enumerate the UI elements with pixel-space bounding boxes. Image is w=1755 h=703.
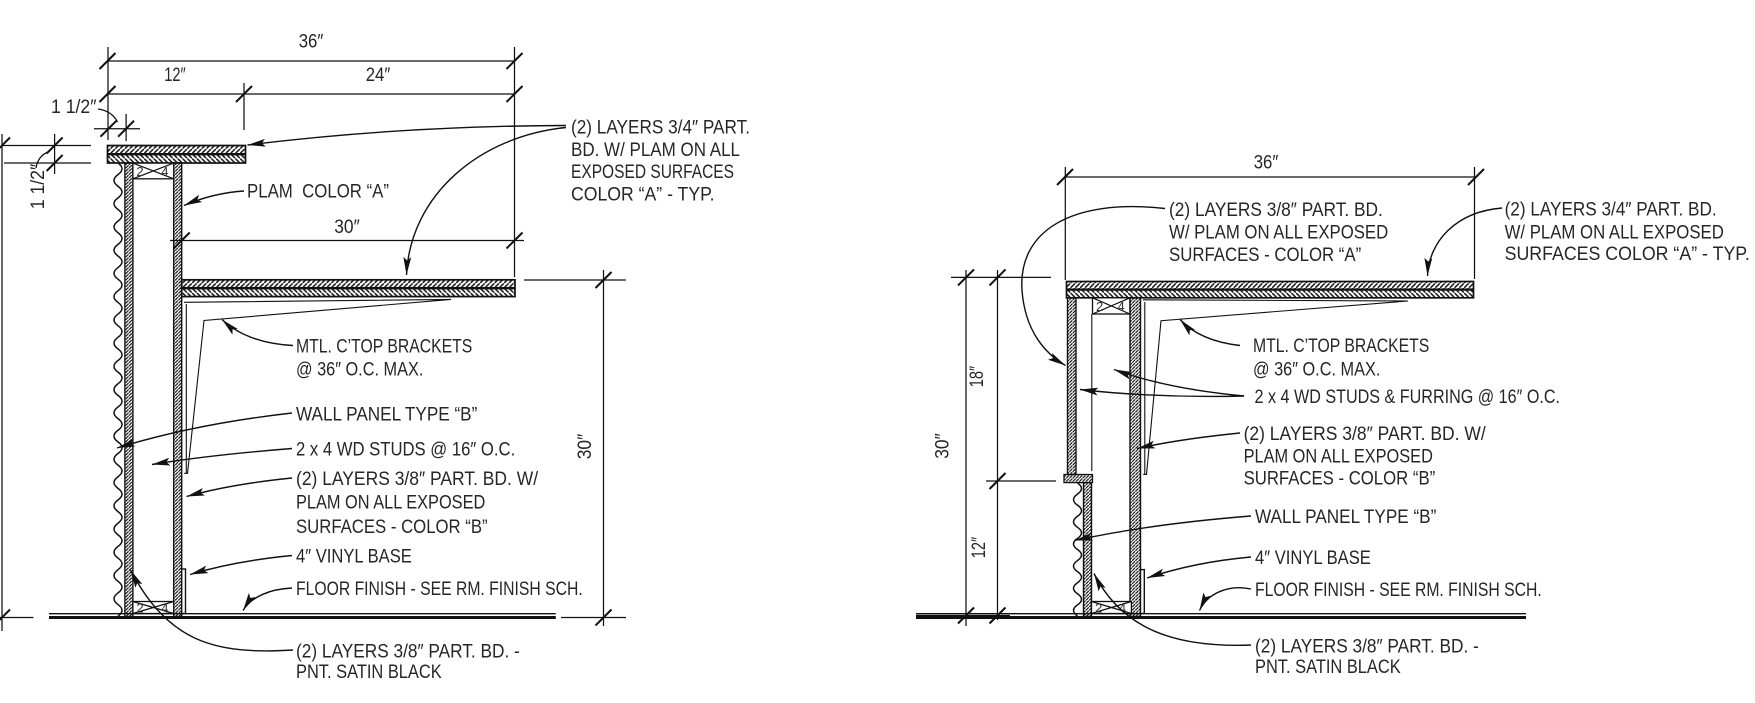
svg-text:SURFACES - COLOR “B”: SURFACES - COLOR “B” (1244, 469, 1436, 490)
svg-text:SURFACES - COLOR “B”: SURFACES - COLOR “B” (296, 517, 488, 538)
svg-text:2 x 4 WD STUDS @ 16″ O.C.: 2 x 4 WD STUDS @ 16″ O.C. (296, 440, 515, 461)
svg-text:30″: 30″ (334, 217, 360, 238)
svg-text:2: 2 (136, 164, 143, 179)
svg-text:FLOOR FINISH - SEE RM. FINISH: FLOOR FINISH - SEE RM. FINISH SCH. (1255, 580, 1542, 601)
svg-text:30″: 30″ (933, 433, 954, 459)
svg-text:WALL PANEL TYPE “B”: WALL PANEL TYPE “B” (296, 404, 477, 425)
svg-text:36″: 36″ (299, 32, 324, 53)
svg-text:12″: 12″ (969, 537, 990, 559)
svg-text:MTL. C’TOP BRACKETS: MTL. C’TOP BRACKETS (296, 337, 472, 358)
svg-text:W/ PLAM ON ALL EXPOSED: W/ PLAM ON ALL EXPOSED (1505, 222, 1724, 243)
svg-text:(2) LAYERS 3/8″ PART. BD. W/: (2) LAYERS 3/8″ PART. BD. W/ (1244, 424, 1487, 445)
svg-text:SURFACES COLOR “A” - TYP.: SURFACES COLOR “A” - TYP. (1505, 244, 1750, 265)
svg-text:(2) LAYERS 3/8″ PART. BD. -: (2) LAYERS 3/8″ PART. BD. - (1255, 636, 1479, 657)
svg-text:(2) LAYERS 3/4″ PART. BD.: (2) LAYERS 3/4″ PART. BD. (1505, 200, 1717, 221)
svg-text:2: 2 (1096, 299, 1103, 314)
svg-text:4″ VINYL BASE: 4″ VINYL BASE (1255, 548, 1371, 569)
svg-text:W/ PLAM ON ALL EXPOSED: W/ PLAM ON ALL EXPOSED (1169, 223, 1388, 244)
svg-text:4″ VINYL BASE: 4″ VINYL BASE (296, 547, 412, 568)
svg-text:(2) LAYERS 3/8″ PART. BD. -: (2) LAYERS 3/8″ PART. BD. - (296, 642, 520, 663)
svg-text:BD. W/ PLAM ON ALL: BD. W/ PLAM ON ALL (571, 140, 740, 161)
svg-text:(2) LAYERS 3/8″ PART. BD.: (2) LAYERS 3/8″ PART. BD. (1169, 200, 1383, 221)
svg-text:@ 36″ O.C. MAX.: @ 36″ O.C. MAX. (1253, 360, 1380, 381)
svg-text:FLOOR FINISH - SEE RM. FINISH: FLOOR FINISH - SEE RM. FINISH SCH. (296, 579, 583, 600)
svg-text:18″: 18″ (967, 366, 988, 388)
svg-text:PLAM COLOR “A”: PLAM COLOR “A” (247, 182, 389, 203)
svg-text:2 x 4 WD STUDS & FURRING @ 16″: 2 x 4 WD STUDS & FURRING @ 16″ O.C. (1255, 387, 1561, 408)
svg-text:30″: 30″ (575, 434, 596, 460)
svg-text:4: 4 (1118, 299, 1125, 314)
svg-text:4: 4 (161, 164, 168, 179)
svg-text:1 1/2″: 1 1/2″ (51, 97, 97, 118)
svg-text:36″: 36″ (1254, 153, 1279, 174)
svg-text:1 1/2″: 1 1/2″ (28, 163, 49, 209)
svg-text:24″: 24″ (366, 65, 391, 86)
svg-text:MTL. C’TOP BRACKETS: MTL. C’TOP BRACKETS (1253, 336, 1429, 357)
svg-text:PLAM ON ALL EXPOSED: PLAM ON ALL EXPOSED (1244, 447, 1433, 468)
svg-text:(2) LAYERS 3/4″ PART.: (2) LAYERS 3/4″ PART. (571, 118, 750, 139)
svg-text:@ 36″ O.C. MAX.: @ 36″ O.C. MAX. (296, 360, 423, 381)
svg-text:PLAM ON ALL EXPOSED: PLAM ON ALL EXPOSED (296, 493, 485, 514)
svg-text:PNT. SATIN BLACK: PNT. SATIN BLACK (296, 662, 442, 683)
svg-text:WALL PANEL TYPE “B”: WALL PANEL TYPE “B” (1255, 507, 1436, 528)
svg-text:(2) LAYERS 3/8″ PART. BD. W/: (2) LAYERS 3/8″ PART. BD. W/ (296, 469, 539, 490)
svg-text:12″: 12″ (164, 65, 186, 86)
svg-text:PNT. SATIN BLACK: PNT. SATIN BLACK (1255, 657, 1401, 678)
svg-text:COLOR “A” - TYP.: COLOR “A” - TYP. (571, 185, 715, 206)
svg-text:SURFACES - COLOR “A”: SURFACES - COLOR “A” (1169, 245, 1361, 266)
svg-text:EXPOSED SURFACES: EXPOSED SURFACES (571, 162, 734, 183)
